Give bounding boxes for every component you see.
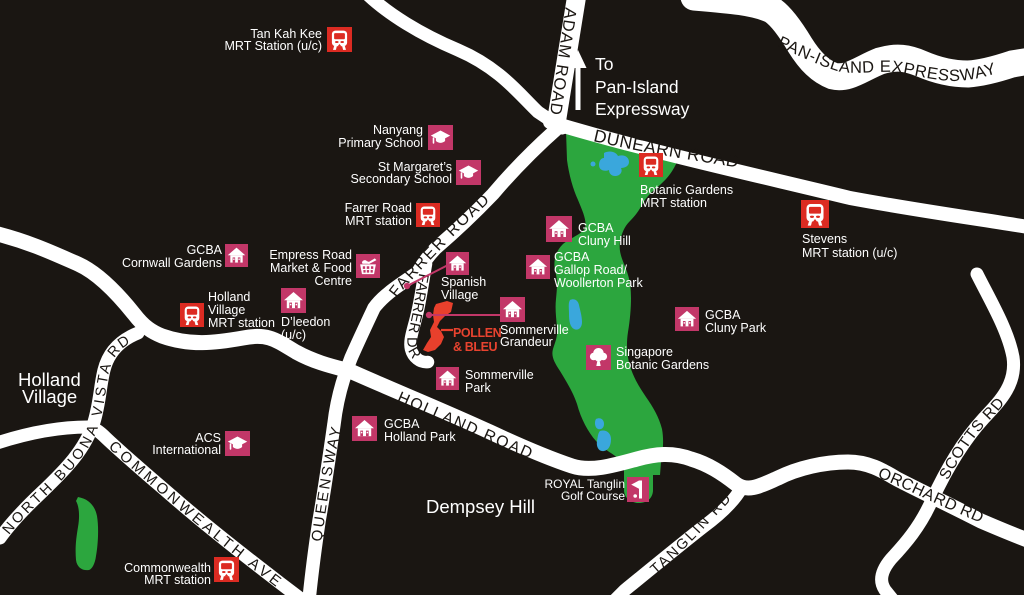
- svg-text:MRT station: MRT station: [208, 316, 275, 330]
- svg-text:Cluny Park: Cluny Park: [705, 321, 767, 335]
- svg-text:MRT station: MRT station: [144, 573, 211, 587]
- svg-text:Singapore: Singapore: [616, 345, 673, 359]
- svg-text:GCBA: GCBA: [384, 417, 420, 431]
- svg-text:Botanic Gardens: Botanic Gardens: [616, 358, 709, 372]
- svg-text:& BLEU: & BLEU: [453, 340, 498, 354]
- svg-text:Primary School: Primary School: [338, 136, 423, 150]
- svg-text:Secondary School: Secondary School: [351, 172, 452, 186]
- svg-text:Expressway: Expressway: [595, 99, 690, 119]
- svg-text:GCBA: GCBA: [554, 250, 590, 264]
- svg-text:(u/c): (u/c): [281, 328, 306, 342]
- svg-text:Cluny Hill: Cluny Hill: [578, 234, 631, 248]
- svg-text:Holland Park: Holland Park: [384, 430, 456, 444]
- svg-text:MRT Station (u/c): MRT Station (u/c): [225, 39, 323, 53]
- svg-text:Farrer Road: Farrer Road: [345, 201, 412, 215]
- svg-text:POLLEN: POLLEN: [453, 326, 502, 340]
- svg-text:Nanyang: Nanyang: [373, 123, 423, 137]
- svg-text:Village: Village: [441, 288, 478, 302]
- svg-text:Market & Food: Market & Food: [270, 261, 352, 275]
- svg-text:GCBA: GCBA: [578, 221, 614, 235]
- svg-text:Centre: Centre: [314, 274, 352, 288]
- svg-text:International: International: [152, 443, 221, 457]
- svg-text:Empress Road: Empress Road: [269, 248, 352, 262]
- svg-text:Spanish: Spanish: [441, 275, 486, 289]
- svg-text:GCBA: GCBA: [705, 308, 741, 322]
- svg-text:MRT station: MRT station: [640, 196, 707, 210]
- svg-text:MRT station (u/c): MRT station (u/c): [802, 246, 897, 260]
- svg-text:Golf Course: Golf Course: [561, 489, 625, 503]
- svg-text:D’leedon: D’leedon: [281, 315, 330, 329]
- svg-text:Village: Village: [22, 386, 77, 407]
- svg-text:Pan-Island: Pan-Island: [595, 77, 679, 97]
- svg-text:Sommerville: Sommerville: [465, 368, 534, 382]
- svg-text:Stevens: Stevens: [802, 232, 847, 246]
- svg-text:Village: Village: [208, 303, 245, 317]
- svg-text:Dempsey Hill: Dempsey Hill: [426, 496, 535, 517]
- svg-text:Holland: Holland: [208, 290, 250, 304]
- svg-text:Cornwall Gardens: Cornwall Gardens: [122, 256, 222, 270]
- svg-text:Woollerton Park: Woollerton Park: [554, 276, 643, 290]
- svg-text:Grandeur: Grandeur: [500, 335, 553, 349]
- svg-text:Botanic Gardens: Botanic Gardens: [640, 183, 733, 197]
- svg-text:Park: Park: [465, 381, 491, 395]
- svg-text:GCBA: GCBA: [187, 243, 223, 257]
- svg-text:To: To: [595, 54, 613, 74]
- svg-text:MRT station: MRT station: [345, 214, 412, 228]
- svg-text:Gallop Road/: Gallop Road/: [554, 263, 627, 277]
